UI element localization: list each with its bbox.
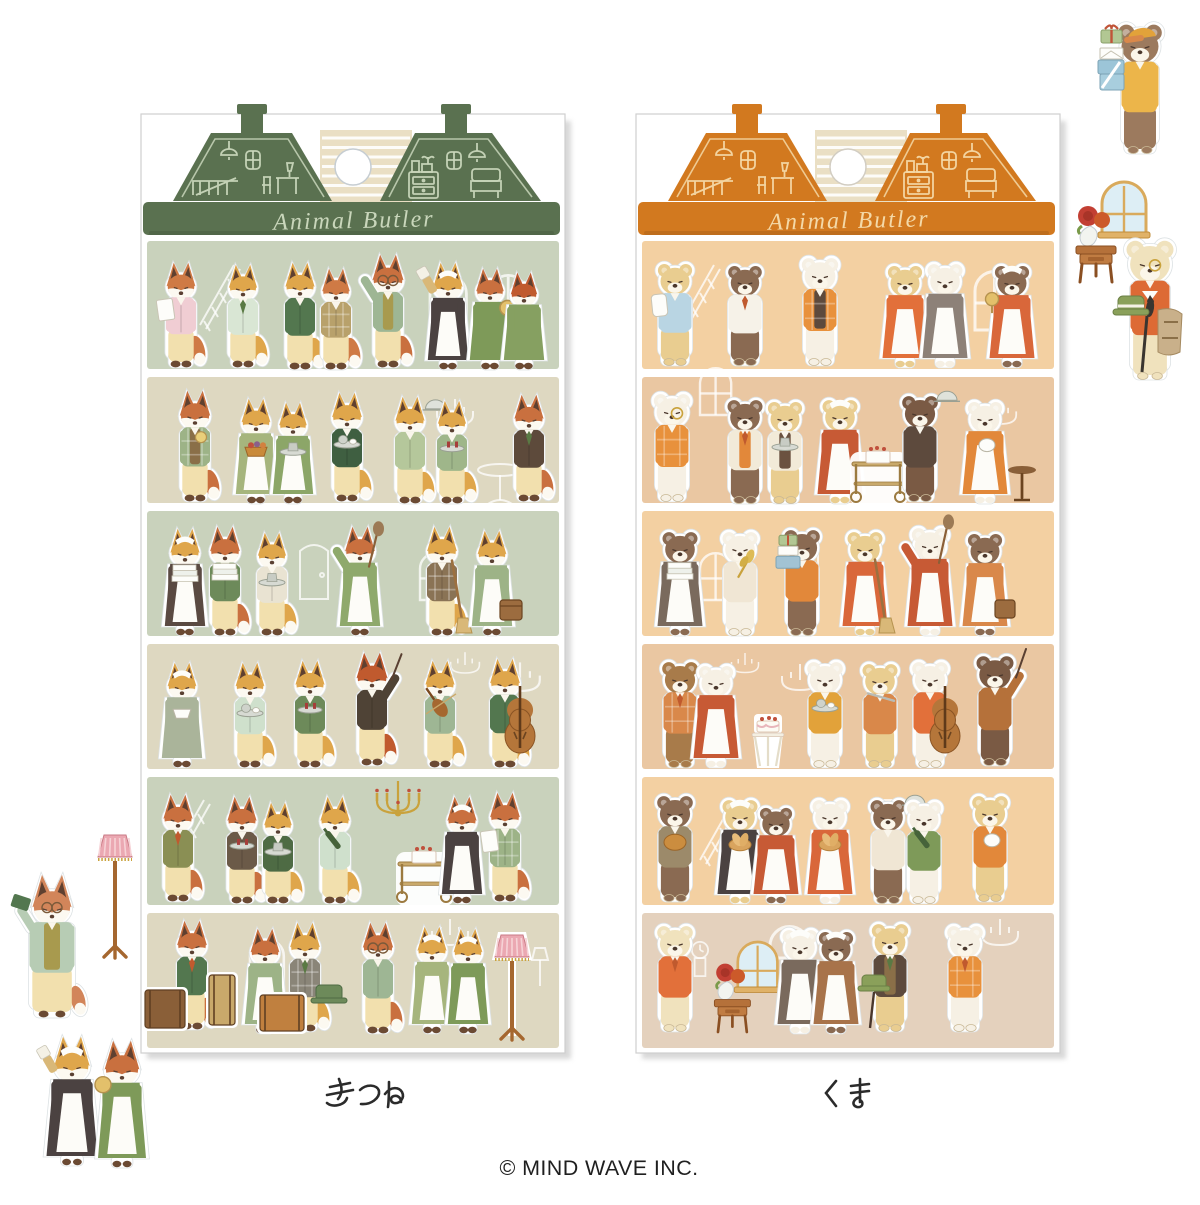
svg-text:© MIND WAVE INC.: © MIND WAVE INC. [499,1156,698,1180]
svg-text:Animal Butler: Animal Butler [766,206,930,235]
svg-text:Animal Butler: Animal Butler [271,206,435,235]
